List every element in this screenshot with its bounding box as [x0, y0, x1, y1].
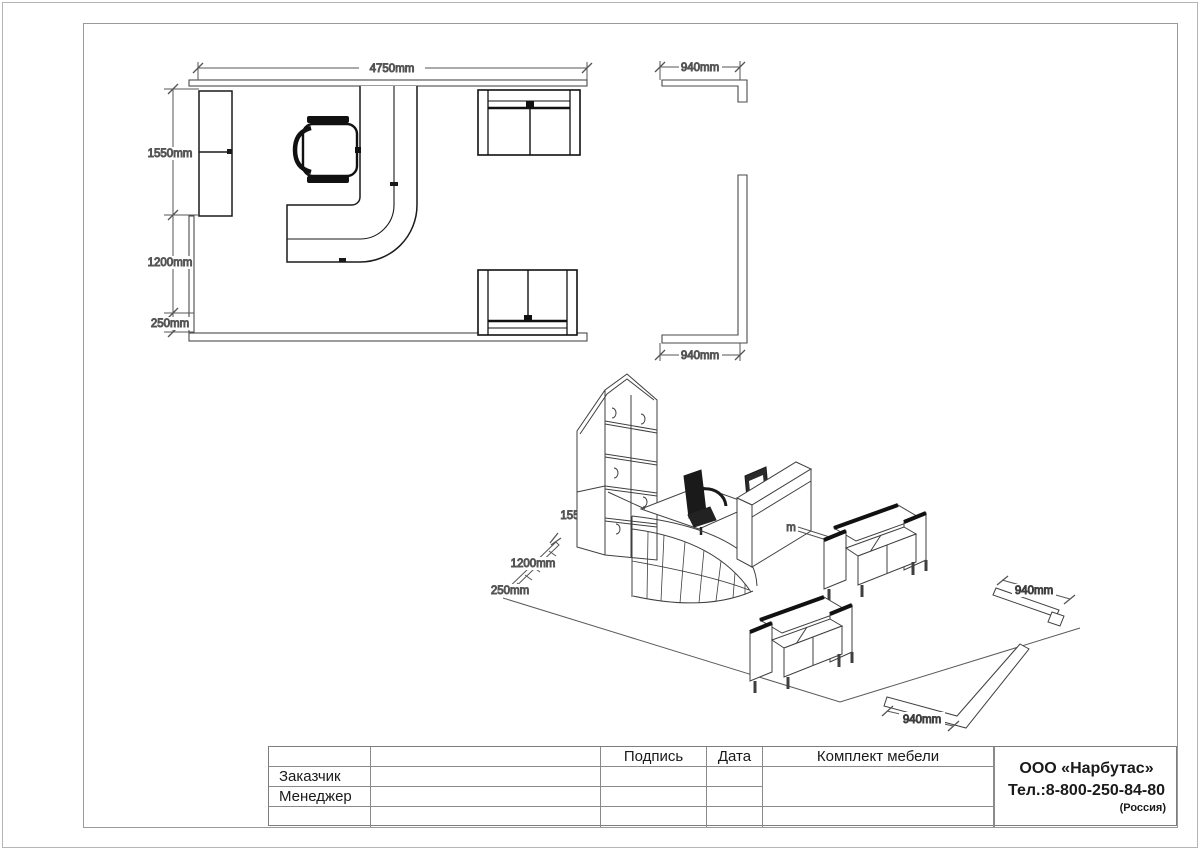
tb-header-set-title: Комплект мебели [763, 747, 994, 767]
tb-manager-date [707, 787, 763, 807]
wall-top [189, 80, 587, 86]
dim-plan-wall-bottom: 940mm [655, 343, 745, 362]
tb-empty-r4c3 [601, 807, 707, 827]
office-chair-plan [295, 116, 361, 183]
dim-label-iso-940-upper: 940mm [1015, 585, 1053, 597]
cabinet-plan [199, 91, 232, 216]
tb-empty-r4c5 [763, 807, 994, 827]
dim-label-4750: 4750mm [370, 63, 415, 75]
tb-empty-r4c2 [371, 807, 601, 827]
dim-label-940-bottom: 940mm [681, 350, 719, 362]
dim-label-1550: 1550mm [148, 148, 193, 160]
tb-header-signature: Подпись [601, 747, 707, 767]
tb-manager-signature [601, 787, 707, 807]
company-country: (Россия) [1120, 801, 1170, 816]
tb-customer-label: Заказчик [269, 767, 371, 787]
drawing-sheet: 4750mm 1550mm 1200mm 250mm [0, 0, 1200, 850]
dim-iso-left: 1200mm 250mm 155 [487, 510, 580, 597]
dim-label-940-top: 940mm [681, 62, 719, 74]
sofa-iso-right [824, 505, 926, 601]
bookcase-iso [577, 374, 657, 560]
dim-label-iso-940-lower: 940mm [903, 714, 941, 726]
wall-segment-top-right-plan [662, 80, 747, 102]
tb-customer-date [707, 767, 763, 787]
dim-label-250: 250mm [151, 318, 189, 330]
dim-plan-wall-top: 940mm [655, 60, 745, 80]
drawing-canvas: 4750mm 1550mm 1200mm 250mm [0, 0, 1200, 850]
dim-label-iso-250: 250mm [491, 585, 529, 597]
tb-empty-r4c1 [269, 807, 371, 827]
tb-manager-value [371, 787, 601, 807]
dim-label-iso-1200: 1200mm [511, 558, 556, 570]
wall-strip-upper-iso: 940mm [993, 576, 1075, 626]
tb-empty-r1c2 [371, 747, 601, 767]
dim-plan-width: 4750mm [193, 61, 592, 80]
tb-header-date: Дата [707, 747, 763, 767]
dim-label-iso-m: m [786, 522, 796, 534]
wall-segment-bottom-right-plan [662, 175, 747, 343]
wall-left [189, 216, 194, 333]
tb-empty-r1c1 [269, 747, 371, 767]
tb-empty-r4c4 [707, 807, 763, 827]
tb-customer-value [371, 767, 601, 787]
dim-label-1200: 1200mm [148, 257, 193, 269]
tb-company-cell: ООО «Нарбутас» Тел.:8-800-250-84-80 (Рос… [994, 747, 1178, 827]
sofa-plan-bottom [478, 270, 577, 335]
wall-strip-lower-iso: 940mm [882, 644, 1029, 731]
iso-view: 1200mm 250mm 155 [487, 374, 1080, 731]
sofa-plan-top [478, 90, 580, 155]
plan-view: 4750mm 1550mm 1200mm 250mm [147, 60, 747, 362]
tb-customer-signature [601, 767, 707, 787]
tb-manager-label: Менеджер [269, 787, 371, 807]
title-block: Подпись Дата Комплект мебели ООО «Нарбут… [268, 746, 1177, 826]
tb-set-body [763, 767, 994, 807]
company-phone: Тел.:8-800-250-84-80 [1008, 780, 1165, 802]
company-name: ООО «Нарбутас» [1019, 758, 1153, 780]
